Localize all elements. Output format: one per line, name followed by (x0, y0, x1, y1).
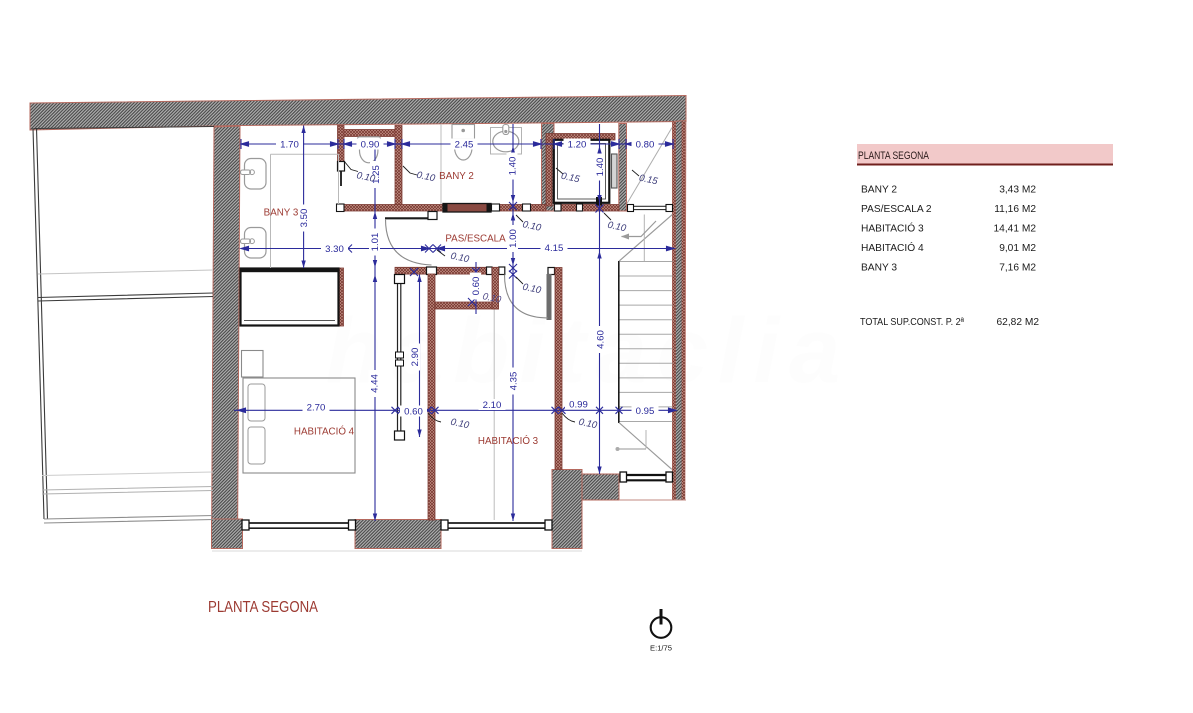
svg-text:TOTAL SUP.CONST. P. 2ª: TOTAL SUP.CONST. P. 2ª (860, 317, 964, 328)
svg-text:0.90: 0.90 (361, 140, 380, 151)
svg-text:2.10: 2.10 (483, 400, 502, 411)
svg-text:14,41 M2: 14,41 M2 (994, 224, 1037, 235)
svg-text:0.60: 0.60 (404, 407, 423, 418)
svg-text:1.40: 1.40 (508, 157, 519, 176)
svg-text:BANY 3: BANY 3 (861, 263, 897, 274)
svg-text:0.80: 0.80 (636, 140, 655, 151)
svg-text:1.40: 1.40 (595, 158, 606, 177)
svg-text:2.70: 2.70 (307, 403, 326, 414)
svg-text:1.00: 1.00 (508, 229, 519, 248)
svg-text:4.60: 4.60 (596, 330, 607, 349)
svg-text:0.60: 0.60 (471, 277, 482, 296)
svg-text:BANY 2: BANY 2 (861, 185, 897, 196)
svg-text:HABITACIÓ 4: HABITACIÓ 4 (294, 427, 355, 438)
svg-text:habitaclia: habitaclia (326, 300, 850, 402)
svg-text:4.44: 4.44 (370, 374, 381, 393)
svg-text:4.35: 4.35 (509, 372, 520, 391)
svg-text:11,16 M2: 11,16 M2 (994, 204, 1036, 215)
svg-text:PAS/ESCALA 2: PAS/ESCALA 2 (861, 204, 932, 215)
svg-text:1.70: 1.70 (280, 140, 299, 151)
svg-text:HABITACIÓ 3: HABITACIÓ 3 (478, 436, 539, 447)
svg-text:BANY 2: BANY 2 (439, 171, 474, 182)
svg-text:7,16 M2: 7,16 M2 (999, 263, 1036, 274)
svg-text:PLANTA SEGONA: PLANTA SEGONA (858, 150, 930, 162)
svg-text:3.30: 3.30 (325, 244, 344, 255)
svg-text:0.95: 0.95 (636, 406, 655, 417)
svg-text:HABITACIÓ 4: HABITACIÓ 4 (861, 241, 924, 254)
svg-text:HABITACIÓ 3: HABITACIÓ 3 (861, 222, 924, 235)
svg-text:3,43 M2: 3,43 M2 (999, 185, 1036, 196)
svg-text:1.20: 1.20 (568, 140, 587, 151)
svg-text:0.99: 0.99 (569, 400, 588, 411)
svg-text:PLANTA SEGONA: PLANTA SEGONA (208, 599, 318, 616)
svg-text:4.15: 4.15 (545, 243, 564, 254)
svg-text:PAS/ESCALA: PAS/ESCALA (445, 234, 506, 245)
svg-text:2.90: 2.90 (410, 348, 421, 367)
svg-text:E:1/75: E:1/75 (650, 644, 672, 653)
svg-text:9,01 M2: 9,01 M2 (999, 243, 1036, 254)
svg-text:1.01: 1.01 (370, 233, 381, 252)
svg-text:62,82 M2: 62,82 M2 (997, 317, 1040, 328)
svg-text:2.45: 2.45 (455, 140, 474, 151)
svg-text:BANY 3: BANY 3 (264, 208, 299, 219)
svg-text:3.50: 3.50 (299, 209, 310, 228)
